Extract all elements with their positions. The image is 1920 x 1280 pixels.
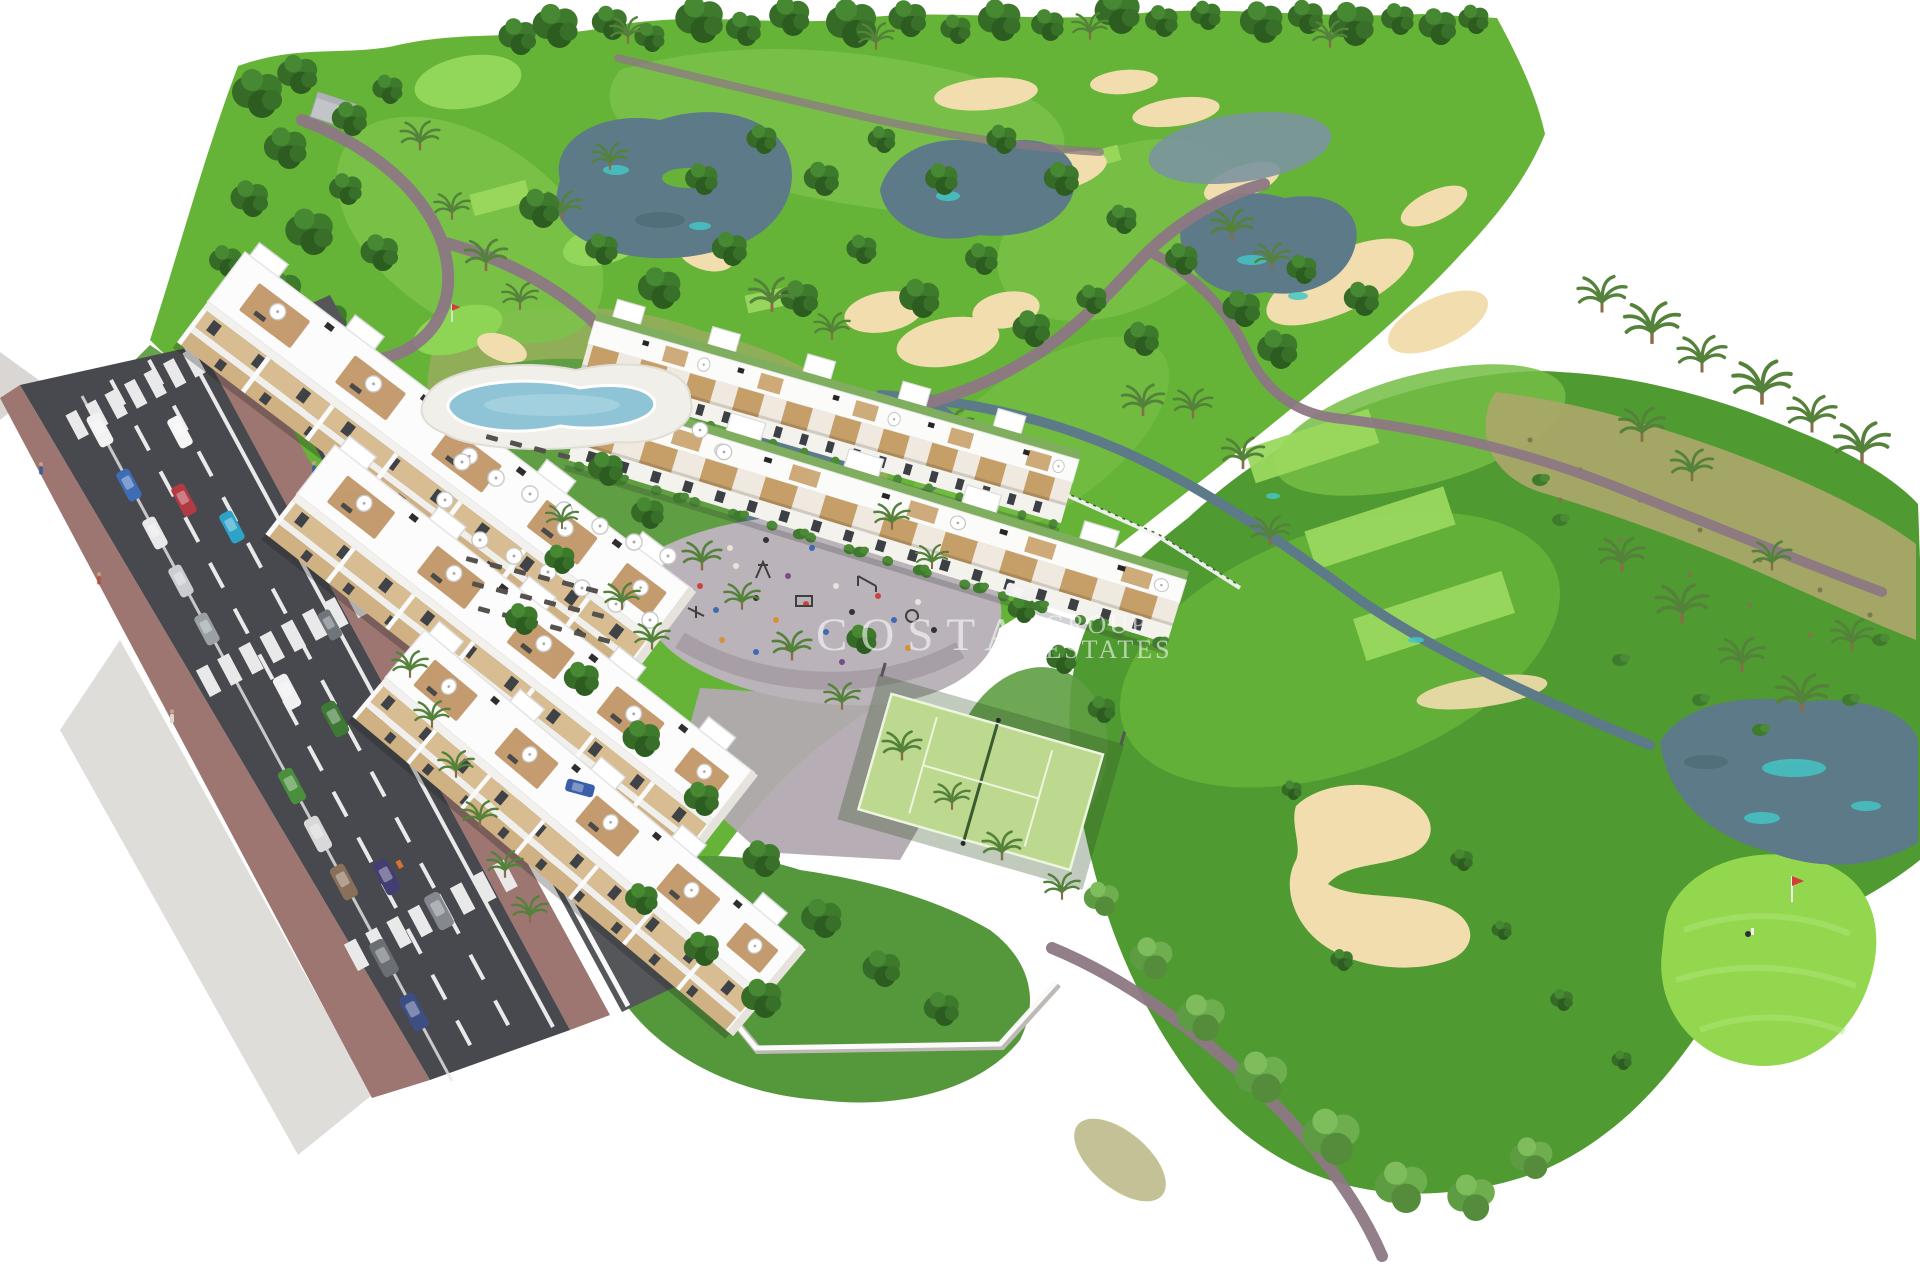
scrub-patch [1060,1103,1180,1217]
pool-shallow [484,394,620,416]
aerial-render-image: COSTA GROUP ESTATES [0,0,1920,1280]
